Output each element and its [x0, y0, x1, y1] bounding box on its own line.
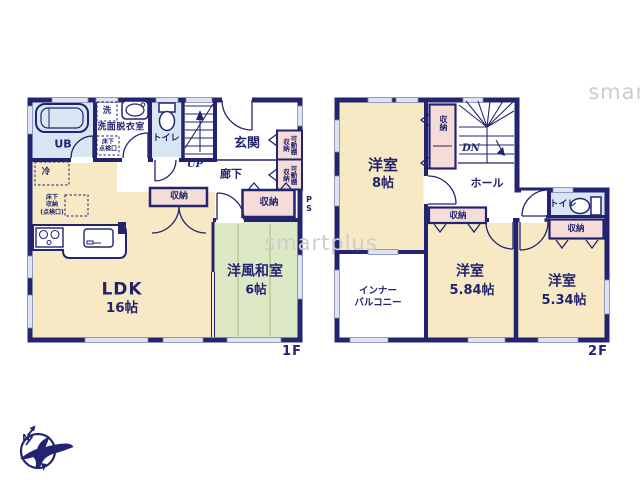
stairs-up-label: UP	[187, 159, 203, 171]
floorplan-page: UB 洗 洗面脱衣室 床下 点検口 トイレ UP 玄関 廊下 収納 可動棚 収納…	[0, 0, 640, 480]
floor1-label: 1F	[282, 344, 302, 360]
japanese-room-door	[217, 193, 244, 220]
hallway-area	[117, 158, 300, 192]
watermark-text: smartplus	[264, 231, 378, 255]
watermark-text-partial: smartplus	[588, 80, 640, 104]
washroom-label: 洗面脱衣室	[97, 123, 145, 134]
hallway-label: 廊下	[220, 167, 242, 180]
pipe-space-label: P S	[306, 196, 312, 214]
closet-stairs-label: 収納	[439, 115, 447, 131]
closet-534-label: 収納	[567, 224, 584, 234]
entrance-label: 玄関	[234, 136, 260, 152]
closet-mid-label: 収納	[449, 210, 466, 220]
toilet-label-2f: トイレ	[549, 200, 576, 211]
bedroom534-area-label: 5.34帖	[541, 293, 586, 309]
japanese-room-area-label: 6帖	[245, 281, 266, 296]
underfloor-storage-label: 床下 収納 (点検口)	[40, 194, 64, 216]
washbasin-icon	[122, 101, 148, 119]
bath-label: UB	[54, 137, 71, 150]
underfloor-access-label: 床下 点検口	[99, 139, 117, 154]
shelf-storage-label-2: 収納	[282, 169, 289, 182]
bedroom584-label: 洋室	[456, 263, 484, 280]
bedroom8-area-label: 8帖	[372, 176, 394, 192]
closet-stairs-label-wrap: 収納	[439, 115, 447, 131]
storage-entrance-label: 収納	[259, 197, 278, 209]
inner-balcony-label: インナー バルコニー	[354, 285, 401, 308]
movable-shelf-label-2: 可動棚	[290, 165, 297, 185]
movable-shelf-labels-1: 収納 可動棚	[282, 135, 296, 155]
ldk-area-label: 16帖	[106, 300, 138, 316]
movable-shelf-labels-2: 収納 可動棚	[282, 165, 296, 185]
compass-icon	[20, 426, 74, 472]
toilet-label-1f: トイレ	[152, 134, 179, 145]
floor2-label: 2F	[588, 344, 608, 360]
compass-north-label: N	[22, 434, 30, 445]
refrigerator-label: 冷	[42, 167, 51, 177]
shelf-storage-label-1: 収納	[282, 139, 289, 152]
hall-label: ホール	[471, 176, 504, 189]
bedroom8-door	[428, 176, 456, 204]
ldk-label: LDK	[101, 280, 142, 301]
japanese-room-label: 洋風和室	[227, 263, 283, 280]
bedroom8-label: 洋室	[368, 156, 398, 174]
counter-wall-stub	[118, 222, 126, 234]
storage-hall-label: 収納	[170, 192, 188, 203]
laundry-label: 洗	[103, 106, 112, 116]
stairs-dn-label: DN	[462, 143, 480, 155]
toilet-icon-1f	[159, 103, 175, 131]
bedroom534-label: 洋室	[548, 273, 576, 290]
movable-shelf-label-1: 可動棚	[290, 135, 297, 155]
bedroom584-area-label: 5.84帖	[449, 283, 494, 299]
